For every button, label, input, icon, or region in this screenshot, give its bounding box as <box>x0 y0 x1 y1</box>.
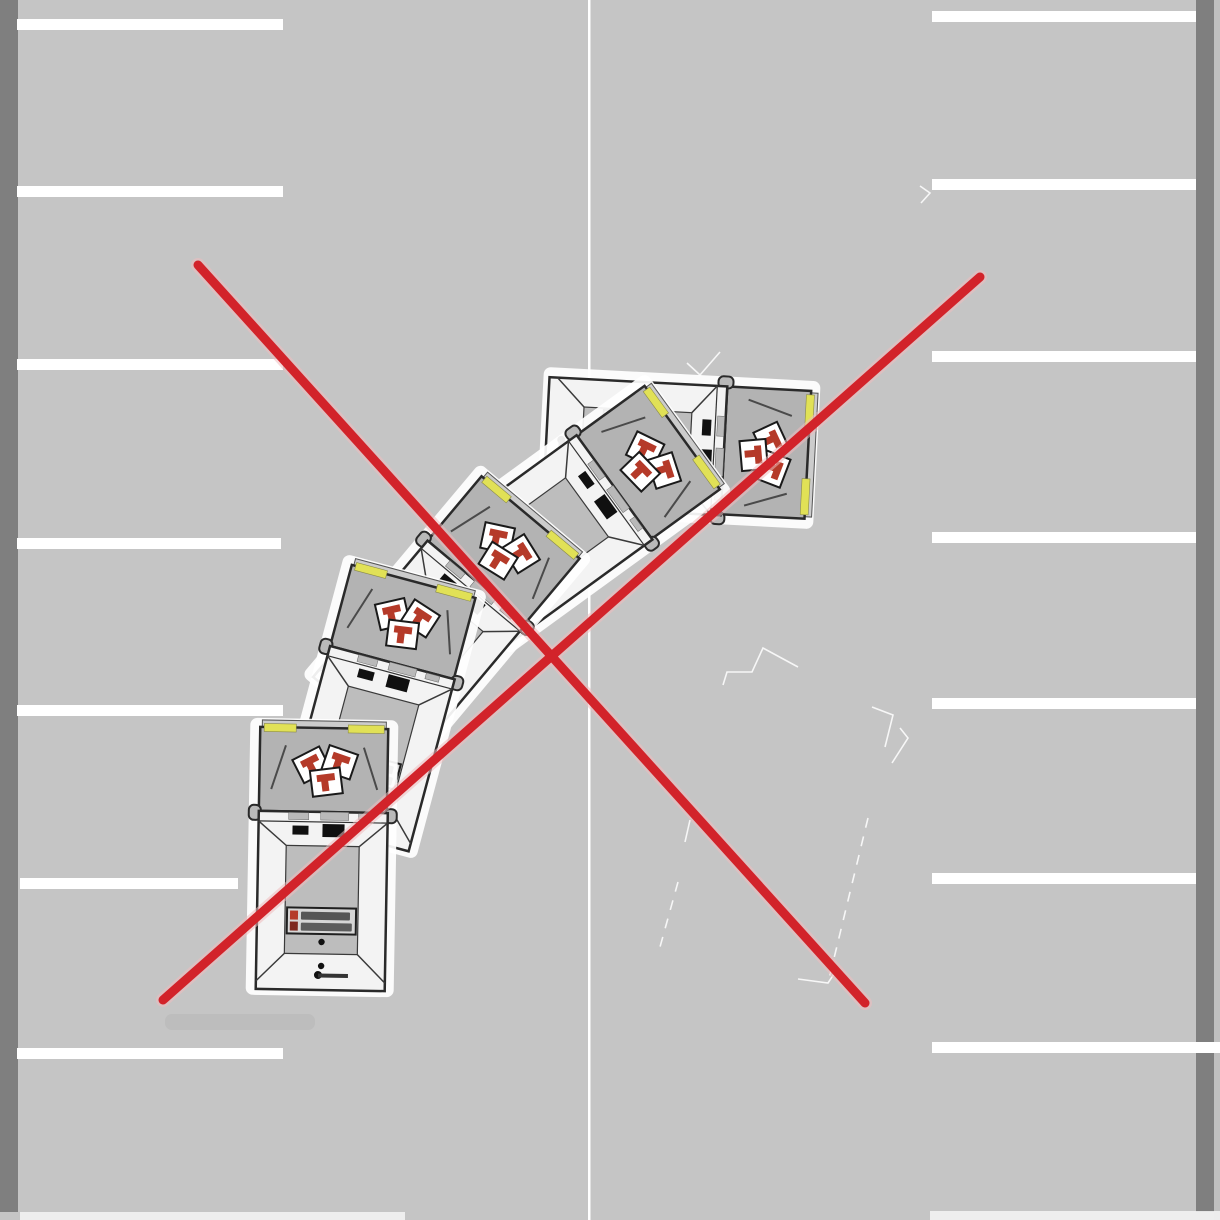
maneuver-diagram <box>0 0 1220 1220</box>
roof-corner-yellow-right <box>800 479 810 515</box>
rear-handle <box>318 973 348 978</box>
right-bay-line-3 <box>932 351 1196 362</box>
right-bay-line-4 <box>932 532 1196 543</box>
bottom-edge-strip-2 <box>930 1211 1220 1220</box>
left-bay-line-2 <box>17 186 283 197</box>
left-bay-line-1 <box>17 19 283 30</box>
truck-brand-label <box>287 907 356 934</box>
right-curb-strip <box>1196 0 1214 1212</box>
shadow-smudge <box>165 1014 315 1030</box>
right-bay-line-5 <box>932 698 1196 709</box>
right-curb-edge <box>1214 0 1220 1220</box>
roof-corner-yellow-right <box>348 725 384 734</box>
bottom-edge-strip-1 <box>20 1212 405 1220</box>
right-bay-line-1 <box>932 11 1196 22</box>
right-bay-line-2 <box>932 179 1196 190</box>
logo-card-icon <box>386 620 419 649</box>
left-bay-line-7 <box>17 1048 283 1059</box>
left-bay-line-4 <box>17 538 281 549</box>
right-bay-line-6 <box>932 873 1196 884</box>
left-curb-strip <box>0 0 18 1212</box>
left-bay-line-3 <box>17 359 283 370</box>
logo-card-icon <box>310 767 343 796</box>
parking-lot-scene <box>0 0 1220 1220</box>
right-bay-line-7 <box>932 1042 1220 1053</box>
left-bay-line-5 <box>17 705 283 716</box>
roof-corner-yellow-left <box>264 723 296 732</box>
left-bay-line-6 <box>20 878 238 889</box>
center-divider-line <box>588 0 591 1220</box>
